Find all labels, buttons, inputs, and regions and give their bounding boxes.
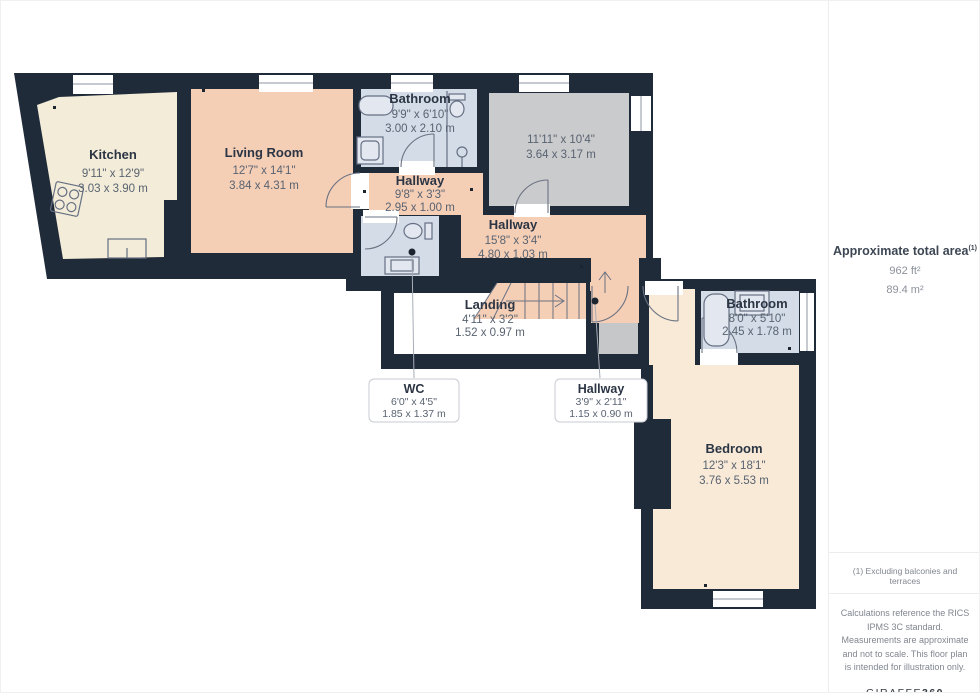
corner-tick	[470, 188, 473, 191]
window-icon	[391, 75, 433, 92]
room-label: Hallway	[396, 173, 445, 188]
corner-tick	[580, 265, 583, 268]
total-area-title: Approximate total area(1)	[829, 244, 980, 258]
room-dims-ft: 9'11" x 12'9"	[82, 168, 144, 180]
room-dims-m: 1.85 x 1.37 m	[382, 408, 446, 420]
room-dims-ft: 6'0" x 4'5"	[391, 396, 437, 408]
total-area-block: Approximate total area(1) 962 ft² 89.4 m…	[829, 244, 980, 296]
room-label: Bathroom	[389, 91, 450, 106]
connector-dot	[592, 298, 599, 305]
entry-mat	[599, 323, 638, 354]
hallway3-callout: Hallway 3'9" x 2'11" 1.15 x 0.90 m	[555, 379, 647, 422]
room-label: Living Room	[225, 145, 304, 160]
total-area-m: 89.4 m²	[829, 284, 980, 296]
toilet-icon	[449, 94, 465, 117]
bathtub-icon	[704, 294, 729, 346]
room-bedroom-entry	[649, 289, 695, 365]
room-dims-m: 3.84 x 4.31 m	[229, 180, 299, 192]
room-dims-ft: 11'11" x 10'4"	[527, 134, 595, 146]
room-dims-m: 3.03 x 3.90 m	[78, 183, 148, 195]
footnote: (1) Excluding balconies and terraces	[829, 552, 980, 594]
corner-tick	[53, 106, 56, 109]
room-dims-ft: 15'8" x 3'4"	[485, 235, 542, 247]
room-dims-m: 4.80 x 1.03 m	[478, 249, 548, 261]
room-dims-m: 3.76 x 5.53 m	[699, 475, 769, 487]
brand-logo: GIRAFFE360	[839, 686, 971, 693]
room-label: Hallway	[489, 217, 538, 232]
corner-tick	[788, 347, 791, 350]
window-icon	[800, 293, 814, 351]
window-icon	[259, 75, 313, 92]
room-dims-ft: 9'9" x 6'10"	[392, 109, 449, 121]
bathtub-icon	[359, 96, 393, 115]
wc-sink-icon	[385, 257, 419, 274]
room-dims-ft: 3'9" x 2'11"	[576, 396, 627, 408]
room-label: Landing	[465, 297, 516, 312]
footnote-ref: (1)	[968, 245, 977, 252]
disclaimer-text: Calculations reference the RICS IPMS 3C …	[839, 607, 971, 675]
bedroom-wall-notch	[634, 419, 671, 509]
room-dims-ft: 12'3" x 18'1"	[702, 460, 765, 472]
room-label: Kitchen	[89, 147, 137, 162]
room-label: Bathroom	[726, 296, 787, 311]
room-dims-ft: 9'8" x 3'3"	[395, 189, 445, 201]
window-icon	[73, 75, 113, 94]
room-dims-ft: 4'11" x 3'2"	[462, 314, 518, 326]
disclaimer-block: Calculations reference the RICS IPMS 3C …	[829, 593, 980, 692]
room-dims-m: 3.00 x 2.10 m	[385, 123, 455, 135]
corner-tick	[704, 584, 707, 587]
connector-dot	[409, 249, 416, 256]
room-label: Bedroom	[705, 441, 762, 456]
window-icon	[713, 591, 763, 607]
room-dims-m: 1.15 x 0.90 m	[569, 408, 633, 420]
wc-callout: WC 6'0" x 4'5" 1.85 x 1.37 m	[369, 379, 459, 422]
room-dims-m: 2.95 x 1.00 m	[385, 202, 455, 214]
sidebar: Approximate total area(1) 962 ft² 89.4 m…	[828, 1, 980, 692]
floorplan-page: WC 6'0" x 4'5" 1.85 x 1.37 m Hallway 3'9…	[0, 0, 980, 693]
room-label: WC	[404, 382, 425, 396]
total-area-ft: 962 ft²	[829, 265, 980, 277]
room-dims-m: 3.64 x 3.17 m	[526, 149, 596, 161]
room-dims-ft: 8'0" x 5'10"	[729, 313, 786, 325]
corner-tick	[202, 89, 205, 92]
room-label: Hallway	[578, 382, 625, 396]
wc-toilet-icon	[404, 223, 432, 239]
window-icon	[631, 96, 651, 131]
room-dims-ft: 12'7" x 14'1"	[232, 165, 295, 177]
corner-tick	[363, 190, 366, 193]
room-dims-m: 2.45 x 1.78 m	[722, 326, 792, 338]
room-dims-m: 1.52 x 0.97 m	[455, 327, 525, 339]
window-icon	[519, 75, 569, 92]
shower-icon	[357, 137, 383, 164]
